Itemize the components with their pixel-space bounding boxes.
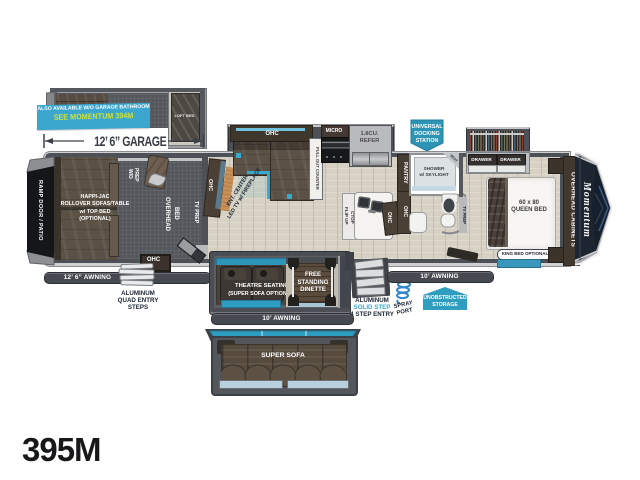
svg-text:UNIVERSAL: UNIVERSAL <box>411 124 443 130</box>
svg-text:UNOBSTRUCTED: UNOBSTRUCTED <box>423 295 467 301</box>
svg-text:STORAGE: STORAGE <box>432 302 458 308</box>
svg-text:STATION: STATION <box>416 138 439 144</box>
svg-text:DOCKING: DOCKING <box>414 131 439 137</box>
